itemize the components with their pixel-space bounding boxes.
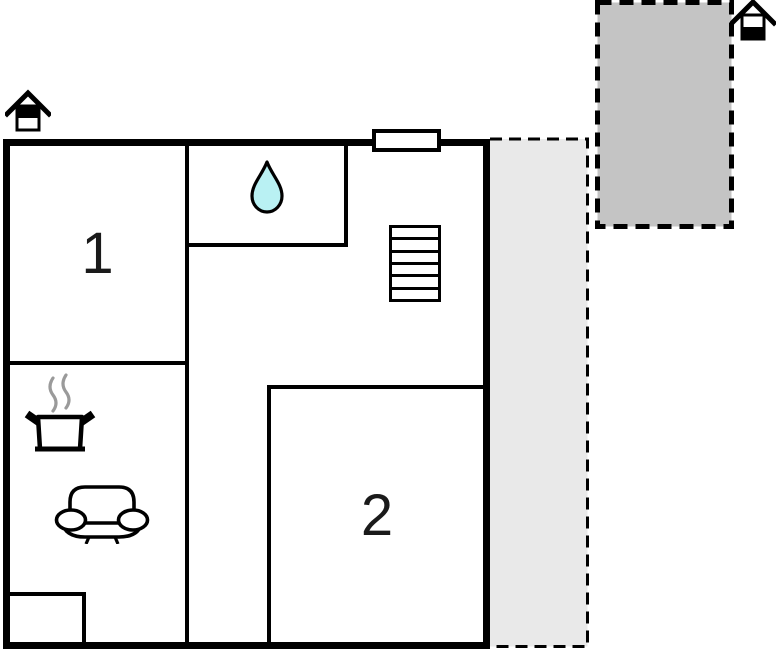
room-2-label: 2: [271, 389, 483, 642]
steam-icon: [50, 375, 69, 411]
stair-tread: [392, 228, 438, 240]
stairs-icon: [389, 225, 441, 302]
sofa-icon: [52, 482, 152, 544]
cooking-pot-icon: [20, 372, 100, 454]
floor-plan: 1 2: [0, 0, 777, 652]
water-drop-icon: [246, 158, 288, 220]
patio-dashed-area: [595, 0, 735, 230]
closet-nook: [10, 592, 86, 642]
house-level-upper-icon: [5, 89, 51, 135]
stair-tread: [392, 265, 438, 277]
room-1-label: 1: [10, 146, 185, 361]
terrace-strip-area: [490, 137, 591, 650]
stair-tread: [392, 290, 438, 299]
window-marker: [372, 129, 441, 152]
stair-tread: [392, 253, 438, 265]
house-level-lower-icon: [730, 0, 776, 44]
wall-room1-bottom: [10, 361, 185, 365]
stair-tread: [392, 277, 438, 289]
stair-tread: [392, 240, 438, 252]
